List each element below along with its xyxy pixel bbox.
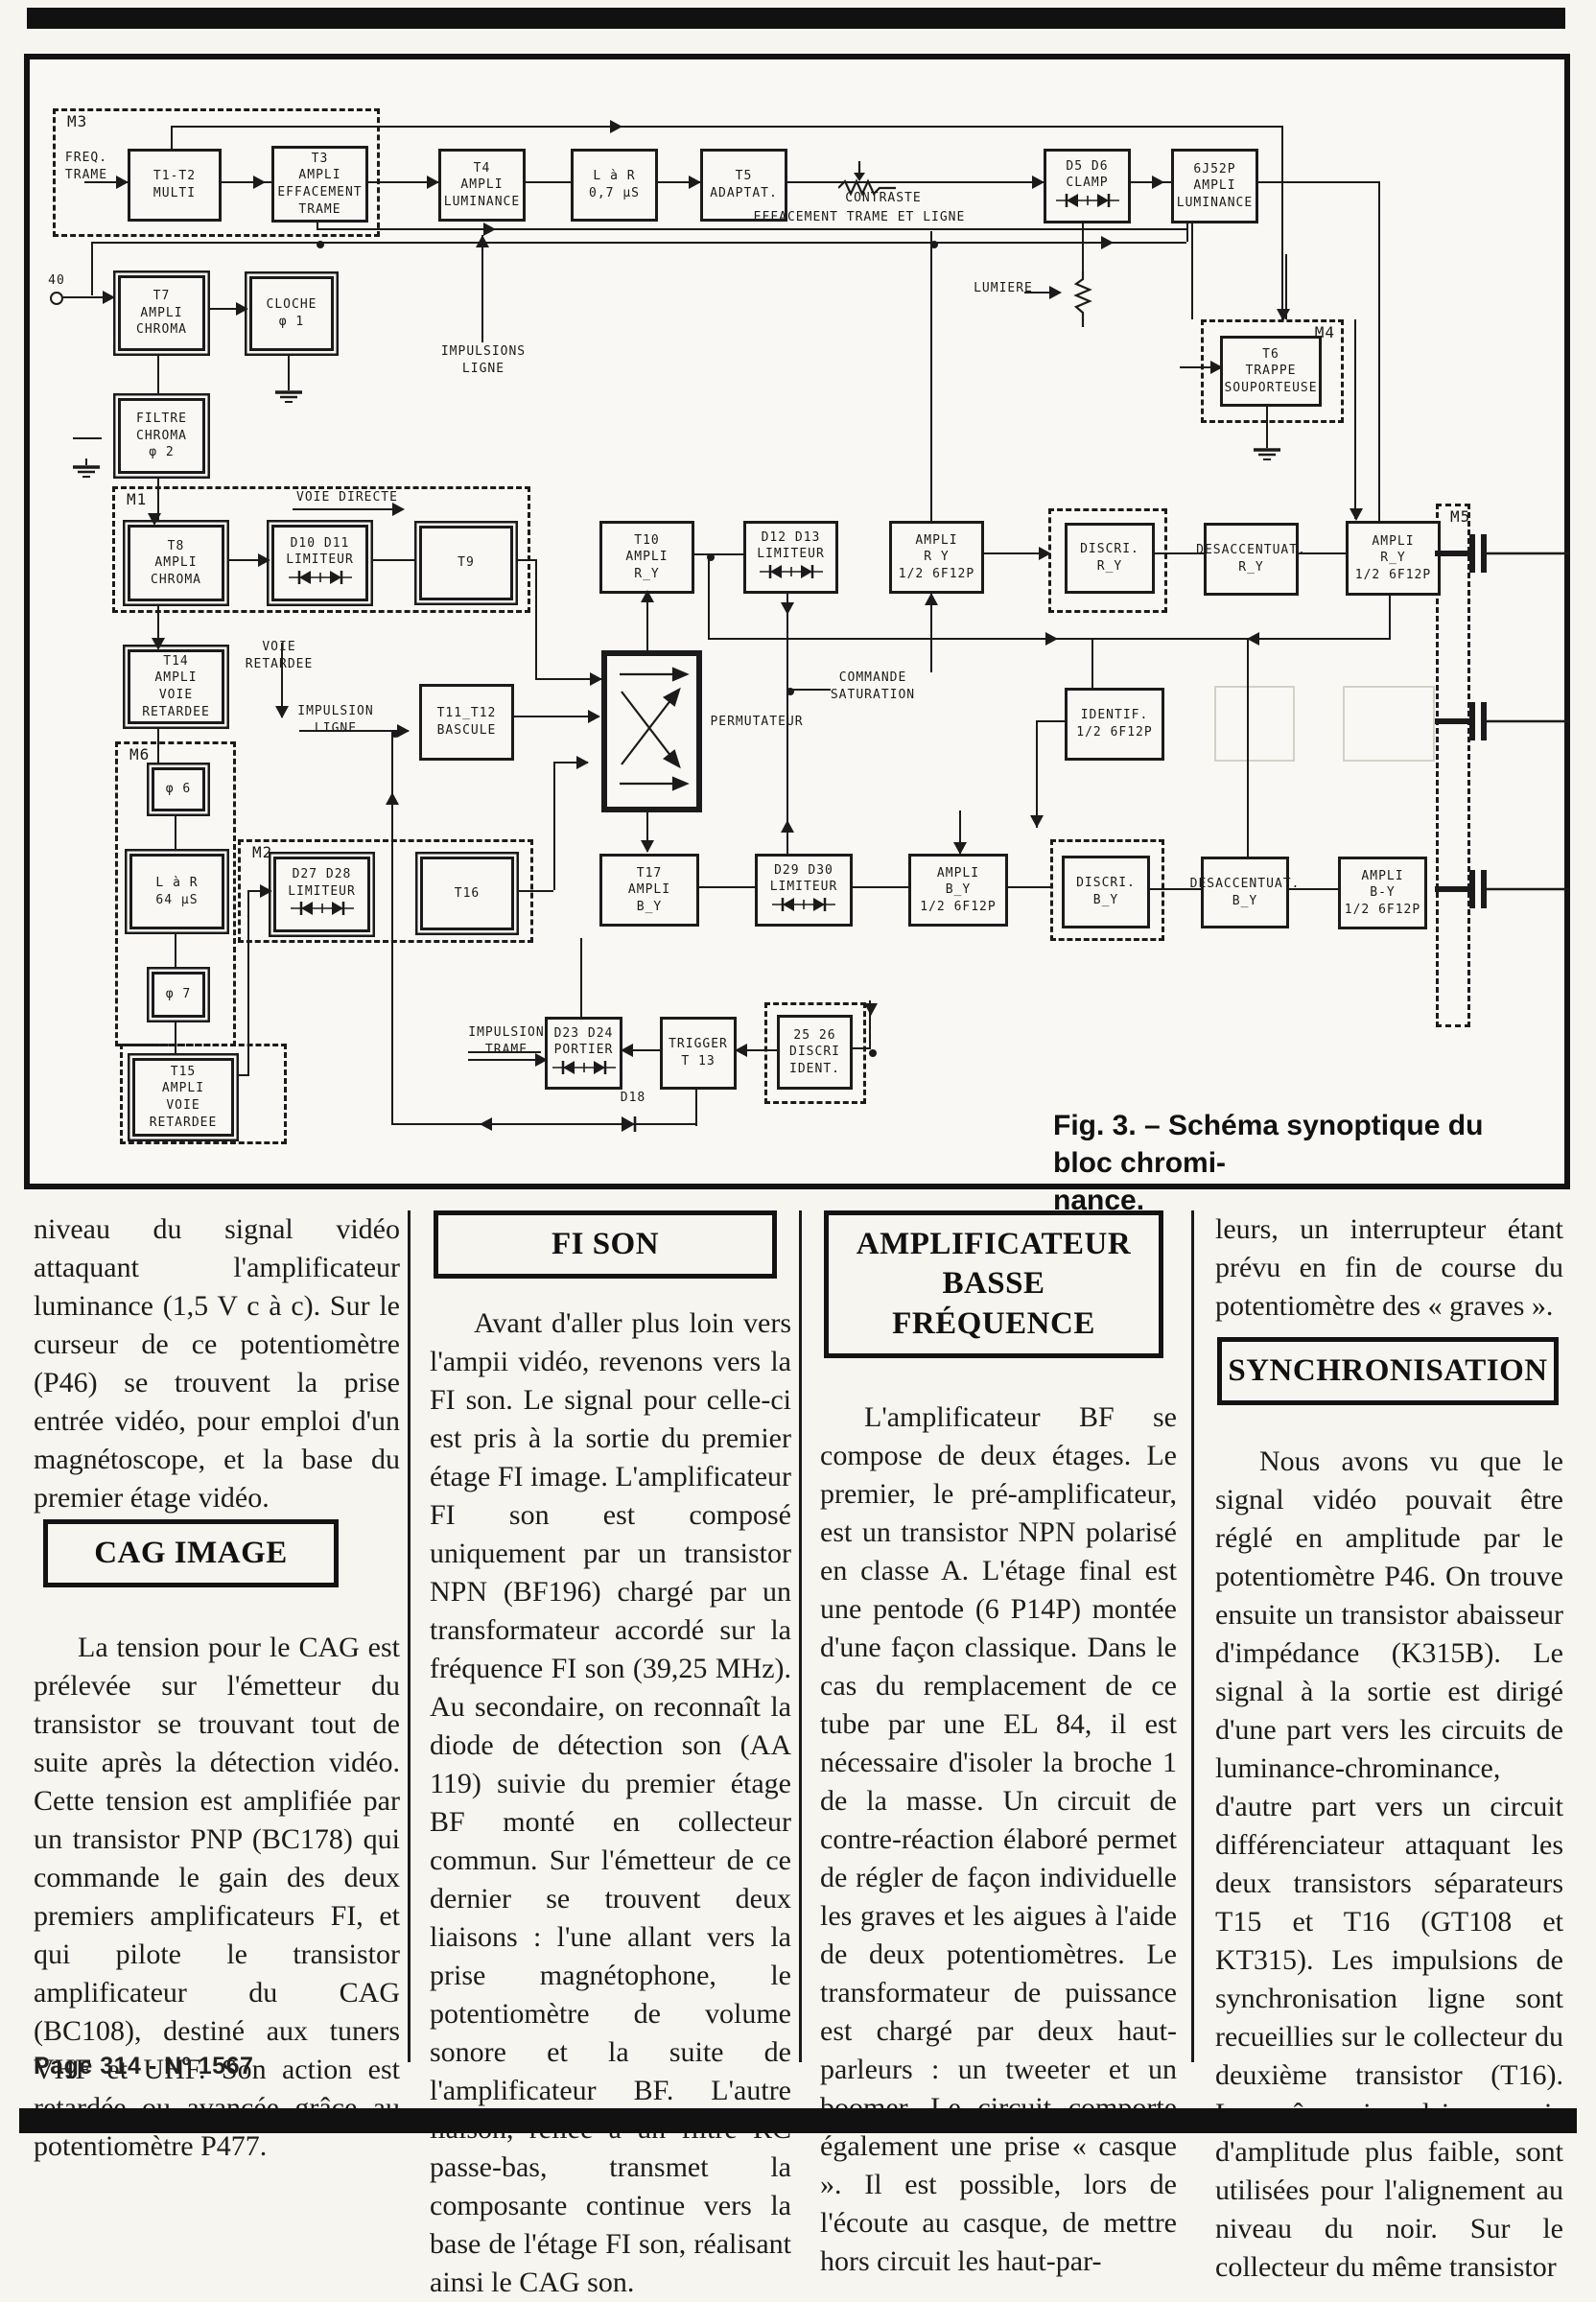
module-box-m5: M5 xyxy=(1436,504,1470,1027)
wire-arrow xyxy=(148,513,161,526)
block-label-line: IDENTIF. xyxy=(1081,707,1149,724)
block-label-line: 1/2 6F12P xyxy=(1345,902,1420,919)
block-trigger-t13: TRIGGERT 13 xyxy=(660,1017,737,1090)
module-label: M6 xyxy=(129,745,150,763)
section-heading: FI SON xyxy=(434,1210,777,1279)
wire xyxy=(317,228,1186,230)
wire-arrow xyxy=(260,884,272,898)
block-label-line: MULTI xyxy=(153,185,196,202)
block-t3-ampli-effacement-trame: T3AMPLIEFFACEMENTTRAME xyxy=(271,146,368,223)
wire xyxy=(1002,886,1050,888)
block-label-line: VOIE xyxy=(166,1097,199,1115)
block-t8-ampli-chroma: T8AMPLICHROMA xyxy=(128,525,224,601)
paragraph: niveau du signal vidéo attaquant l'ampli… xyxy=(34,1210,400,1517)
section-heading: AMPLIFICATEUR BASSE FRÉQUENCE xyxy=(824,1210,1163,1358)
block-label-line: 6J52P xyxy=(1193,161,1235,178)
wire xyxy=(693,886,755,888)
block-label-line: ADAPTAT. xyxy=(710,185,778,202)
page-footer: Page 314 - Nº 1567 xyxy=(34,2053,253,2080)
diode-symbol xyxy=(618,1115,643,1139)
junction-dot xyxy=(869,1049,877,1057)
block-label-line: 0,7 µS xyxy=(589,185,640,202)
wire-arrow xyxy=(590,672,602,686)
block-identif-6f12p: IDENTIF.1/2 6F12P xyxy=(1065,688,1164,761)
block-ampli-by-6f12p: AMPLIB_Y1/2 6F12P xyxy=(908,854,1008,927)
column-divider xyxy=(408,1210,411,2062)
figure-caption-line1: Fig. 3. – Schéma synoptique du bloc chro… xyxy=(1053,1107,1514,1182)
block-t16: T16 xyxy=(420,857,514,930)
wire-arrow xyxy=(103,291,115,304)
label-40: 40 xyxy=(42,272,71,290)
block-label-line: AMPLI xyxy=(1361,868,1403,885)
wire-arrow xyxy=(1152,176,1164,189)
figure-caption: Fig. 3. – Schéma synoptique du bloc chro… xyxy=(1053,1107,1514,1219)
block-label-line: R_Y xyxy=(1238,559,1263,576)
block-label-line: D5 D6 xyxy=(1066,158,1108,176)
wire-arrow xyxy=(925,593,938,605)
wire-arrow xyxy=(781,602,794,615)
diode-pair-icon xyxy=(1056,192,1119,215)
diode-pair-icon xyxy=(760,563,823,586)
wire-arrow xyxy=(1210,361,1223,374)
wire-arrow xyxy=(588,710,600,723)
wire-arrow xyxy=(480,1117,492,1131)
wire-arrow xyxy=(689,176,701,189)
wire-arrow xyxy=(1039,547,1051,560)
wire-arrow xyxy=(386,792,399,805)
label-permutateur: PERMUTATEUR xyxy=(696,714,817,731)
wire-arrow xyxy=(576,756,589,769)
diode-pair-icon xyxy=(289,569,352,592)
wire-arrow xyxy=(953,842,967,855)
text-column-1: niveau du signal vidéo attaquant l'ampli… xyxy=(34,1210,400,2079)
block-ampli-ry2-6f12p: AMPLIR_Y1/2 6F12P xyxy=(1346,521,1441,596)
junction-dot xyxy=(786,688,794,695)
wire xyxy=(1036,720,1065,722)
cap-symbol xyxy=(1435,866,1569,917)
gnd-stub-symbol xyxy=(73,430,102,447)
block-discri-by: DISCRI.B_Y xyxy=(1062,856,1150,928)
block-label-line: AMPLI xyxy=(460,176,503,194)
wire xyxy=(580,938,582,1017)
column-divider xyxy=(799,1210,802,2062)
block-label-line: AMPLI xyxy=(1193,177,1235,195)
block-d23-d24-portier: D23 D24PORTIER xyxy=(545,1017,622,1090)
label-commande-saturation: COMMANDESATURATION xyxy=(819,669,927,704)
block-d10-d11-limiteur: D10 D11LIMITEUR xyxy=(271,525,368,601)
block-cloche-phi1: CLOCHEφ 1 xyxy=(249,276,334,351)
block-label-line: 1/2 6F12P xyxy=(920,899,996,916)
block-label-line: T14 xyxy=(163,653,188,670)
block-phi7: φ 7 xyxy=(152,972,205,1018)
block-t17-ampli-by: T17AMPLIB_Y xyxy=(599,854,699,927)
paragraph: L'amplificateur BF se compose de deux ét… xyxy=(820,1398,1177,2281)
paragraph: Avant d'aller plus loin vers l'ampii vid… xyxy=(430,1304,791,2302)
paragraph: La tension pour le CAG est prélevée sur … xyxy=(34,1629,400,2166)
wire xyxy=(1253,181,1379,183)
block-label-line: DISCRI. xyxy=(1080,541,1139,558)
block-label-line: RETARDEE xyxy=(150,1115,218,1132)
block-label-line: SOUPORTEUSE xyxy=(1224,380,1317,397)
text-column-4: leurs, un interrupteur étant prévu en fi… xyxy=(1215,1210,1563,2079)
bottom-rule xyxy=(19,2108,1577,2133)
block-label-line: T11_T12 xyxy=(437,705,497,722)
wire-arrow xyxy=(610,120,622,133)
block-label-line: T17 xyxy=(637,865,662,882)
section-heading: CAG IMAGE xyxy=(43,1519,339,1587)
crossover-arrows-icon xyxy=(614,659,691,805)
wire-arrow xyxy=(253,176,266,189)
terminal-symbol xyxy=(50,292,63,305)
block-label-line: B-Y xyxy=(1370,884,1395,902)
block-label-line: TRAME xyxy=(298,201,340,219)
wire-arrow xyxy=(1045,632,1058,646)
block-label-line: TRAPPE xyxy=(1246,363,1297,380)
block-label-line: AMPLI xyxy=(628,881,670,899)
text-column-3: AMPLIFICATEUR BASSE FRÉQUENCEL'amplifica… xyxy=(820,1210,1177,2079)
module-label: M3 xyxy=(67,112,87,130)
wire-arrow xyxy=(1350,508,1363,521)
cap-symbol xyxy=(1435,698,1569,749)
wire xyxy=(847,886,908,888)
wire-arrow xyxy=(621,1044,633,1057)
block-desaccentuat-by: DESACCENTUAT.B_Y xyxy=(1201,857,1289,928)
wire-arrow xyxy=(1032,176,1044,189)
junction-dot xyxy=(317,241,324,248)
label-lumiere: LUMIERE xyxy=(965,280,1042,297)
wire-arrow xyxy=(152,638,165,650)
block-label-line: L à R xyxy=(155,875,198,892)
block-label-line: D29 D30 xyxy=(774,862,833,880)
block-label-line: VOIE xyxy=(159,687,193,704)
module-label: M1 xyxy=(127,490,147,508)
block-label-line: AMPLI xyxy=(915,532,957,550)
wire-arrow xyxy=(427,176,439,189)
wire xyxy=(481,235,483,342)
ground-symbol xyxy=(271,384,306,410)
wire xyxy=(1378,181,1380,521)
block-label-line: AMPLI xyxy=(937,865,979,882)
wire-arrow xyxy=(1030,815,1044,828)
block-label-line: FILTRE xyxy=(136,411,187,428)
wire-arrow xyxy=(641,590,654,602)
block-label-line: AMPLI xyxy=(1372,533,1414,551)
section-heading: SYNCHRONISATION xyxy=(1217,1337,1559,1405)
block-label-line: CLAMP xyxy=(1066,175,1108,192)
ground-symbol xyxy=(69,458,104,484)
label-voie-directe: VOIE DIRECTE xyxy=(290,489,405,506)
block-label-line: φ 6 xyxy=(166,781,191,798)
wire-arrow xyxy=(735,1044,747,1057)
block-label-line: AMPLI xyxy=(625,549,668,566)
block-label-line: CHROMA xyxy=(151,572,201,589)
block-label-line: T 13 xyxy=(681,1053,715,1070)
block-label-line: R_Y xyxy=(634,566,659,583)
block-permutateur xyxy=(601,650,702,812)
block-t6-trappe-souporteuse: T6TRAPPESOUPORTEUSE xyxy=(1220,336,1322,407)
wire xyxy=(91,242,93,295)
block-label-line: DESACCENTUAT. xyxy=(1190,876,1301,893)
label-impulsions-ligne: IMPULSIONSLIGNE xyxy=(434,343,533,378)
block-label-line: φ 1 xyxy=(279,314,304,331)
wire-arrow xyxy=(397,724,410,738)
block-label-line: AMPLI xyxy=(298,167,340,184)
block-label-line: EFFACEMENT xyxy=(277,184,362,201)
block-t11-t12-bascule: T11_T12BASCULE xyxy=(419,684,514,761)
block-t14-ampli-voie-retardee: T14AMPLIVOIERETARDEE xyxy=(128,649,224,724)
block-label-line: AMPLI xyxy=(154,669,197,687)
wire xyxy=(930,231,932,521)
block-ampli-ry-6f12p: AMPLIR Y1/2 6F12P xyxy=(889,521,984,594)
block-label-line: B_Y xyxy=(946,881,971,899)
block-label-line: LUMINANCE xyxy=(1177,195,1253,212)
block-label-line: CHROMA xyxy=(136,321,187,339)
block-label-line: CLOCHE xyxy=(267,296,317,314)
wire-arrow xyxy=(476,235,489,247)
block-label-line: 1/2 6F12P xyxy=(1076,724,1152,741)
wire-arrow xyxy=(641,840,654,853)
junction-dot xyxy=(930,241,938,248)
wire xyxy=(695,1084,697,1126)
block-label-line: TRIGGER xyxy=(669,1036,728,1053)
wire xyxy=(1281,126,1283,319)
wire-arrow xyxy=(1247,632,1259,646)
block-filtre-chroma-phi2: FILTRECHROMAφ 2 xyxy=(118,398,205,474)
label-d18: D18 xyxy=(614,1090,652,1107)
block-d5-d6-clamp: D5 D6CLAMP xyxy=(1044,149,1131,223)
pot-v-symbol xyxy=(1068,271,1098,332)
block-discri-ry: DISCRI.R_Y xyxy=(1065,523,1155,594)
block-label-line: φ 7 xyxy=(166,986,191,1003)
ground-symbol xyxy=(1250,441,1284,467)
paragraph: leurs, un interrupteur étant prévu en fi… xyxy=(1215,1210,1563,1326)
block-label-line: CHROMA xyxy=(136,428,187,445)
wire-arrow xyxy=(275,706,289,718)
magazine-page: { "page": { "caption_line1": "Fig. 3. – … xyxy=(0,0,1596,2133)
block-t10-ampli-ry: T10AMPLIR_Y xyxy=(599,521,694,594)
label-voie-retardee: VOIERETARDEE xyxy=(236,639,322,673)
block-label-line: T9 xyxy=(458,554,475,572)
label-impulsion-trame: IMPULSIONTRAME xyxy=(460,1024,552,1059)
block-label-line: T1-T2 xyxy=(153,168,196,185)
module-label: M5 xyxy=(1450,507,1470,526)
block-label-line: D12 D13 xyxy=(762,529,821,547)
block-label-line: T10 xyxy=(634,532,659,550)
cap-symbol xyxy=(1435,530,1569,581)
wire xyxy=(1191,218,1193,319)
wire xyxy=(782,181,1044,183)
wire xyxy=(391,1123,697,1125)
block-d12-d13-limiteur: D12 D13LIMITEUR xyxy=(743,521,838,594)
block-desaccentuat-ry: DESACCENTUAT.R_Y xyxy=(1204,523,1299,596)
wire xyxy=(508,716,594,717)
block-label-line: LIMITEUR xyxy=(770,879,838,896)
block-d29-d30-limiteur: D29 D30LIMITEUR xyxy=(755,854,853,927)
label-freq-trame: FREQ.TRAME xyxy=(56,150,117,184)
wire xyxy=(157,345,159,398)
block-label-line: T8 xyxy=(168,538,185,555)
wire xyxy=(91,242,1186,244)
block-ampli-by2-6f12p: AMPLIB-Y1/2 6F12P xyxy=(1338,857,1427,929)
wire-arrow xyxy=(483,223,496,236)
block-label-line: T3 xyxy=(312,151,329,168)
block-lar-64us: L à R64 µS xyxy=(129,854,224,929)
wire xyxy=(1082,218,1084,273)
block-t1-t2-multi: T1-T2MULTI xyxy=(128,149,222,222)
block-label-line: T15 xyxy=(171,1064,196,1081)
wire xyxy=(288,345,290,384)
block-label-line: AMPLI xyxy=(154,554,197,572)
block-label-line: 1/2 6F12P xyxy=(899,566,974,583)
wire xyxy=(708,555,710,640)
block-label-line: 64 µS xyxy=(155,892,198,909)
block-label-line: PORTIER xyxy=(554,1042,614,1059)
block-label-line: B_Y xyxy=(637,899,662,916)
block-t15-ampli-voie-retardee: T15AMPLIVOIERETARDEE xyxy=(132,1058,234,1137)
block-phi6: φ 6 xyxy=(152,767,205,811)
block-lar-0-7us: L à R0,7 µS xyxy=(571,149,658,222)
wire xyxy=(689,553,743,555)
block-label-line: AMPLI xyxy=(162,1080,204,1097)
block-label-line: AMPLI xyxy=(140,305,182,322)
block-label-line: 25 26 xyxy=(793,1027,835,1045)
ghost-print-artifact xyxy=(1343,686,1435,762)
block-t4-ampli-luminance: T4AMPLILUMINANCE xyxy=(438,149,526,222)
ghost-print-artifact xyxy=(1214,686,1295,762)
block-label-line: R_Y xyxy=(1097,558,1122,575)
block-label-line: DESACCENTUAT. xyxy=(1196,542,1306,559)
block-label-line: LIMITEUR xyxy=(286,552,354,569)
wire xyxy=(553,762,555,890)
block-d27-d28-limiteur: D27 D28LIMITEUR xyxy=(273,857,370,932)
block-label-line: LIMITEUR xyxy=(288,883,356,901)
block-6j52p-ampli-luminance: 6J52PAMPLILUMINANCE xyxy=(1171,149,1258,223)
wire-arrow xyxy=(258,553,270,567)
block-label-line: R Y xyxy=(924,549,949,566)
block-t9: T9 xyxy=(419,526,513,600)
block-label-line: R_Y xyxy=(1380,550,1405,567)
block-label-line: T7 xyxy=(153,288,171,305)
block-label-line: T5 xyxy=(736,168,753,185)
block-label-line: B_Y xyxy=(1232,893,1257,910)
block-label-line: LIMITEUR xyxy=(757,546,825,563)
wire-arrow xyxy=(236,302,248,316)
text-column-2: FI SONAvant d'aller plus loin vers l'amp… xyxy=(430,1210,791,2079)
article-columns: niveau du signal vidéo attaquant l'ampli… xyxy=(0,1210,1596,2079)
wire-arrow xyxy=(864,1003,878,1016)
label-impulsion-ligne: IMPULSIONLIGNE xyxy=(290,703,382,738)
wire xyxy=(535,559,537,680)
diode-pair-icon xyxy=(772,896,835,919)
block-label-line: T6 xyxy=(1262,346,1279,364)
block-label-line: L à R xyxy=(593,168,635,185)
wire-arrow xyxy=(1049,286,1062,299)
diode-pair-icon xyxy=(552,1059,616,1082)
block-label-line: DISCRI xyxy=(789,1044,840,1061)
block-25-26-discri-ident: 25 26DISCRIIDENT. xyxy=(777,1015,853,1090)
junction-dot xyxy=(707,553,715,561)
block-label-line: DISCRI. xyxy=(1076,875,1136,892)
block-label-line: 1/2 6F12P xyxy=(1355,567,1431,584)
block-label-line: D23 D24 xyxy=(554,1025,614,1043)
block-label-line: LUMINANCE xyxy=(444,194,520,211)
wire xyxy=(1247,640,1249,857)
label-effacement-trame-et-ligne: EFFACEMENT TRAME ET LIGNE xyxy=(725,209,994,226)
pot-h-symbol xyxy=(838,161,896,202)
block-label-line: B_Y xyxy=(1093,892,1118,909)
wire-arrow xyxy=(1277,309,1290,321)
wire xyxy=(1091,640,1093,688)
wire xyxy=(520,181,571,183)
wire xyxy=(1389,590,1391,640)
block-label-line: BASCULE xyxy=(437,722,497,740)
paragraph: Nous avons vu que le signal vidéo pouvai… xyxy=(1215,1443,1563,2287)
block-label-line: IDENT. xyxy=(789,1061,840,1078)
wire-arrow xyxy=(781,820,794,833)
block-label-line: D10 D11 xyxy=(291,535,350,552)
wire-arrow xyxy=(1101,236,1114,249)
column-divider xyxy=(1191,1210,1194,2062)
chrominance-block-diagram: M3M4M1M6M2M5T1-T2MULTIT3AMPLIEFFACEMENTT… xyxy=(0,0,1596,1182)
wire xyxy=(1354,319,1356,519)
module-label: M2 xyxy=(252,843,272,861)
block-label-line: D27 D28 xyxy=(293,866,352,883)
wire xyxy=(1036,720,1038,828)
block-label-line: T16 xyxy=(455,885,480,903)
block-t7-ampli-chroma: T7AMPLICHROMA xyxy=(118,275,205,351)
wire xyxy=(1247,638,1389,640)
block-label-line: RETARDEE xyxy=(142,704,210,721)
diode-pair-icon xyxy=(291,900,354,923)
block-label-line: φ 2 xyxy=(149,444,174,461)
block-label-line: T4 xyxy=(474,160,491,177)
wire-arrow xyxy=(116,176,129,189)
